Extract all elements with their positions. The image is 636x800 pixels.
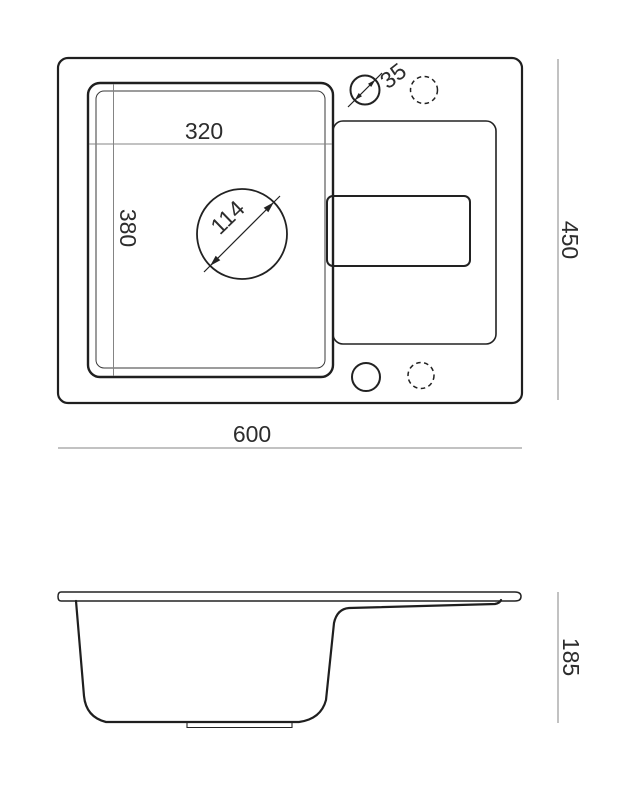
- basin-width-label: 320: [185, 118, 223, 144]
- sink-drawing-canvas: 320 380 114 35 450 600: [0, 0, 636, 800]
- bowl-profile: [76, 600, 501, 722]
- overall-width-label: 600: [233, 421, 271, 447]
- technical-drawing-page: 320 380 114 35 450 600: [0, 0, 636, 800]
- overall-depth-label: 185: [558, 638, 584, 676]
- top-view: 320 380 114 35 450 600: [58, 58, 583, 448]
- rim-profile: [58, 592, 521, 601]
- overall-height-label: 450: [557, 221, 583, 259]
- drain-foot-profile: [187, 723, 292, 728]
- side-view: 185: [58, 592, 584, 728]
- drainboard-outline: [333, 121, 496, 344]
- basin-length-label: 380: [115, 209, 141, 247]
